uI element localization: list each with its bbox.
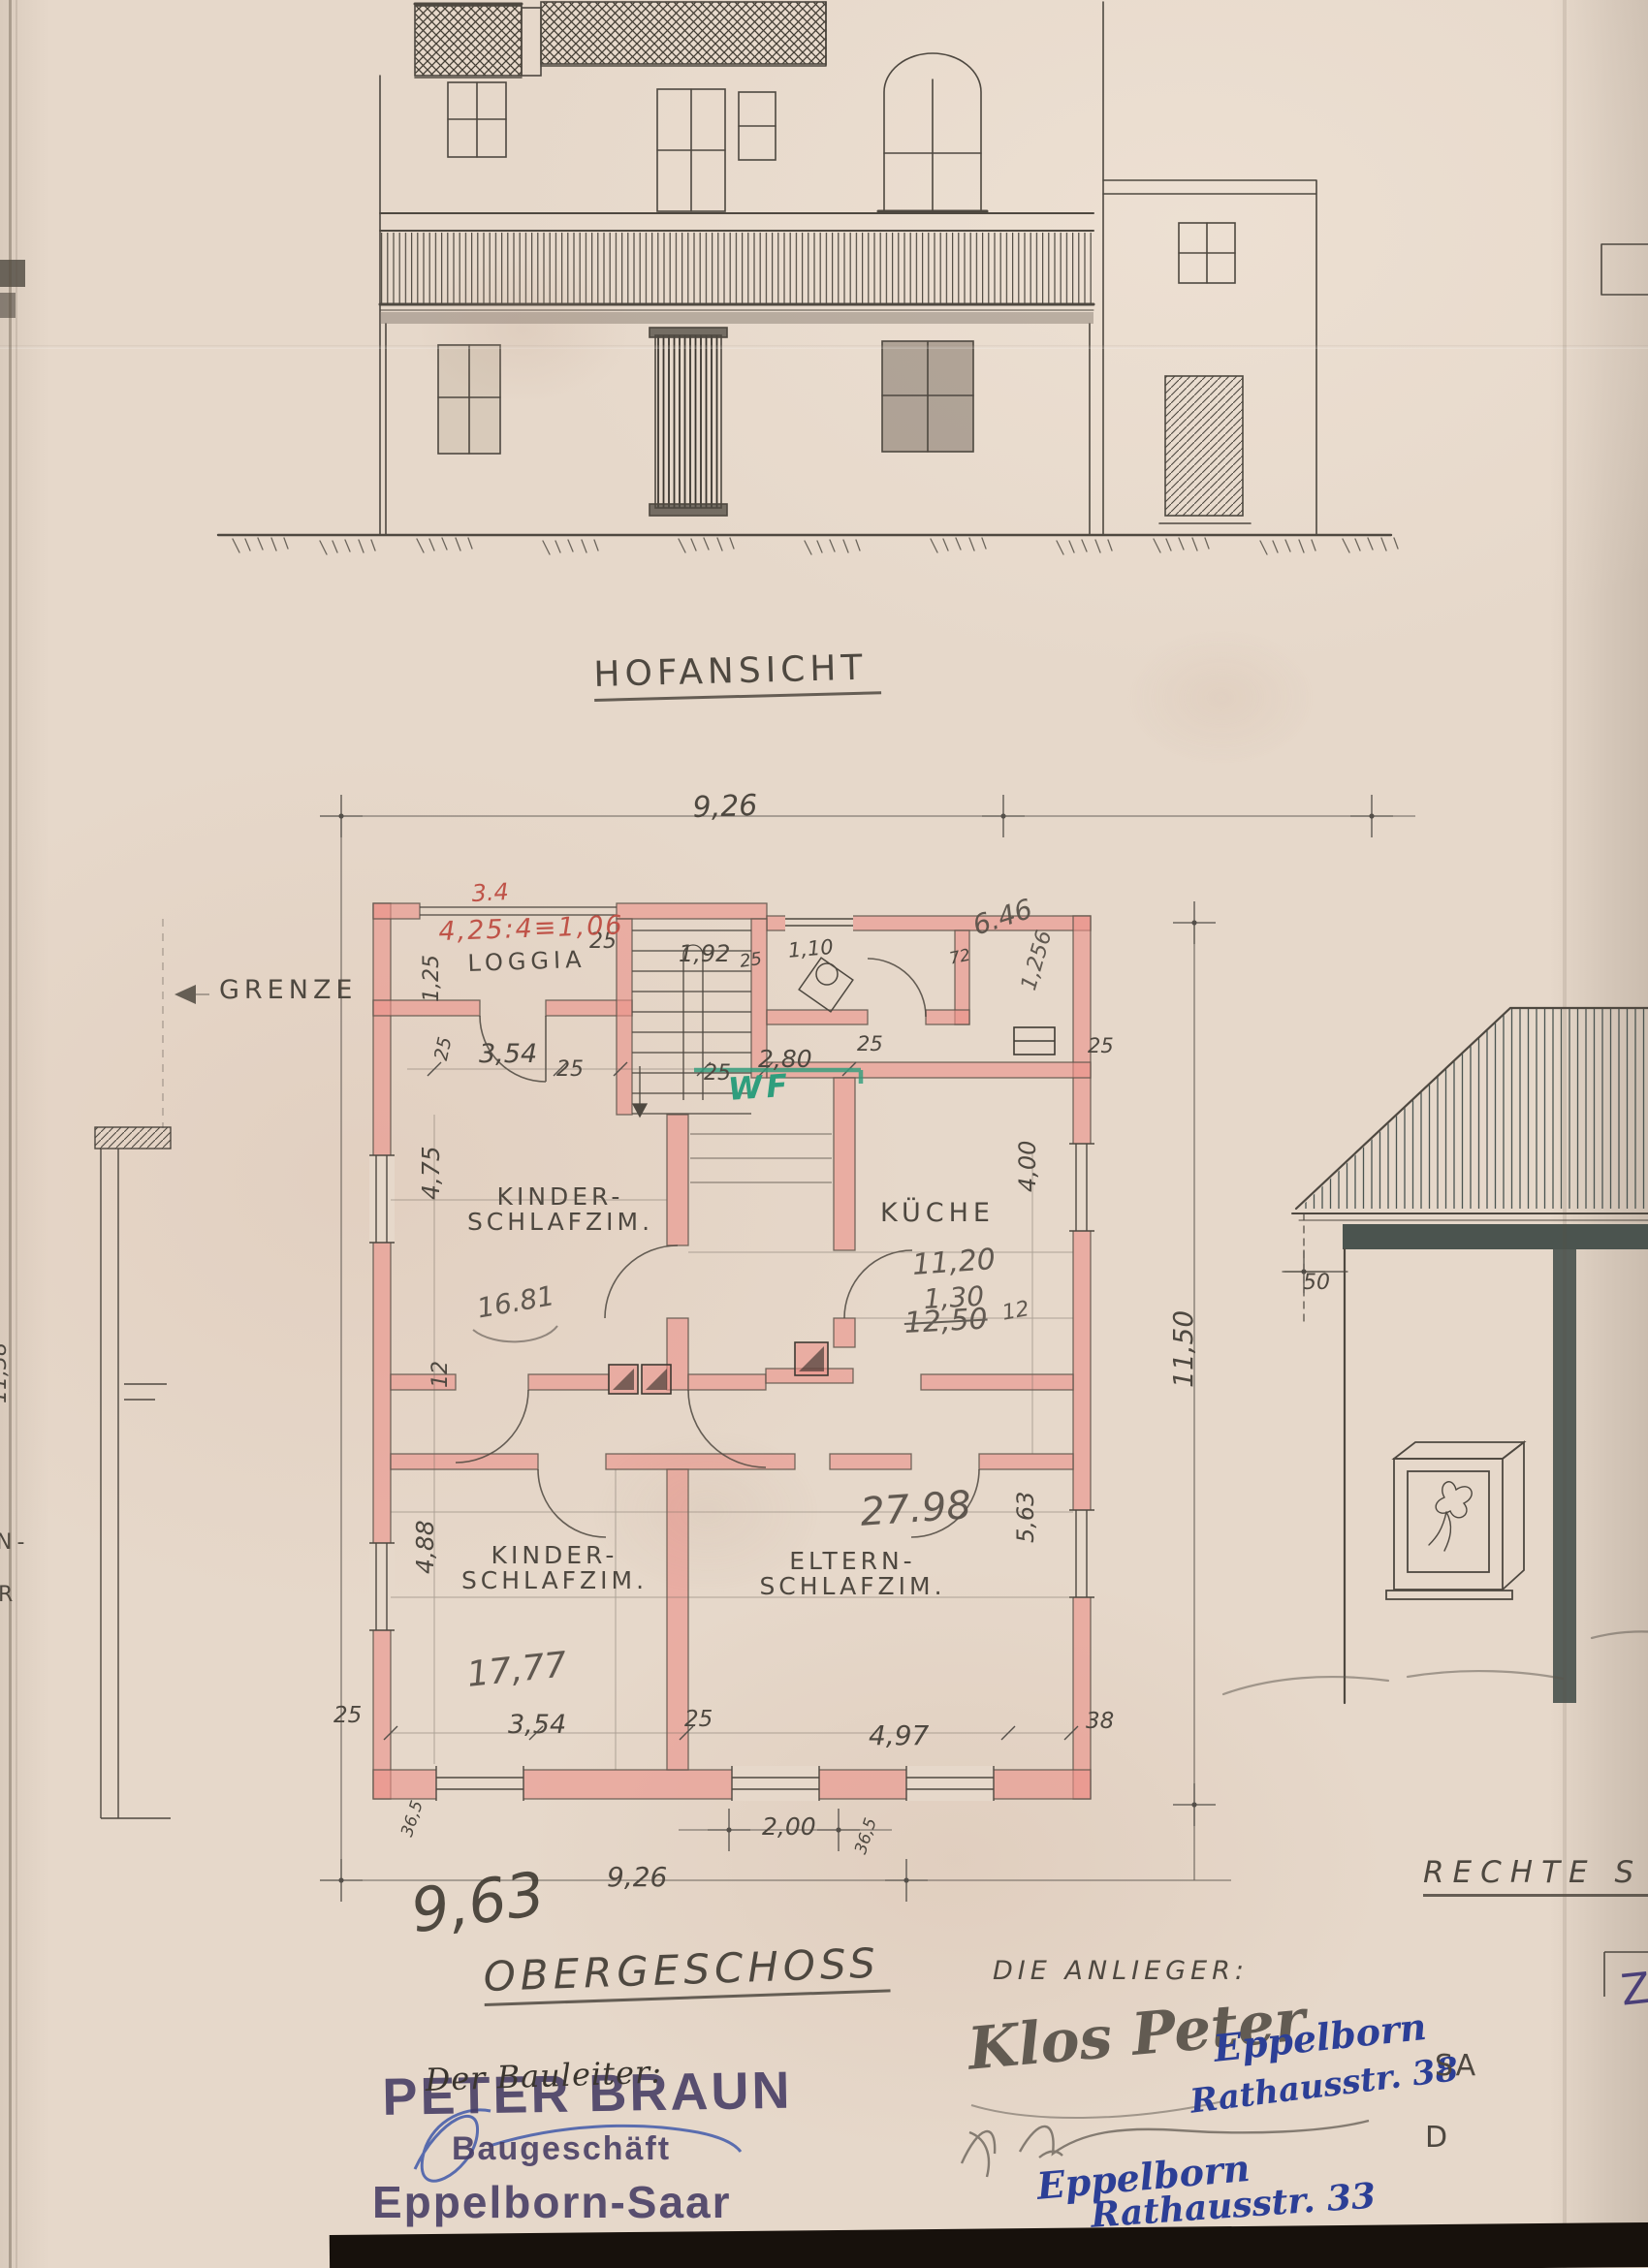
dim-563: 5,63 bbox=[1014, 1492, 1038, 1543]
dim-25-e: 25 bbox=[556, 1058, 584, 1081]
fragment-right-d: D bbox=[1425, 2123, 1447, 2154]
pencil-12: 12 bbox=[1000, 1298, 1031, 1325]
pencil-1250-crossed: 12,50 bbox=[903, 1305, 988, 1339]
grenze-label: GRENZE bbox=[219, 977, 358, 1004]
dim-400: 4,00 bbox=[1016, 1141, 1040, 1192]
neighbour-wall-fragment bbox=[95, 1127, 171, 1818]
side-view-drawing bbox=[1223, 1003, 1648, 1703]
dim-25-b: 25 bbox=[739, 951, 763, 972]
green-note-wf: WF bbox=[727, 1069, 792, 1106]
dim-926-bottom: 9,26 bbox=[607, 1863, 667, 1891]
dim-192: 1,92 bbox=[679, 942, 730, 966]
dim-1150: 11,50 bbox=[1169, 1310, 1197, 1388]
fragment-right-sa: SA bbox=[1435, 2051, 1477, 2082]
dim-926-top: 9,26 bbox=[692, 791, 758, 824]
elevation-title: HOFANSICHT bbox=[593, 649, 881, 702]
paper-fold-right bbox=[1563, 0, 1567, 2268]
dim-354-lower: 3,54 bbox=[508, 1712, 566, 1739]
dim-50-sideview: 50 bbox=[1303, 1272, 1330, 1294]
anlieger-heading: DIE ANLIEGER: bbox=[993, 1958, 1249, 1985]
room-label-kinderschlafzimmer-2: KINDER- SCHLAFZIM. bbox=[458, 1543, 651, 1594]
dim-25-c: 25 bbox=[857, 1033, 883, 1055]
scanned-blueprint-page: HOFANSICHT OBERGESCHOSS RECHTE S DIE ANL… bbox=[0, 0, 1648, 2268]
red-note-34: 3.4 bbox=[471, 880, 509, 906]
side-view-title-partial: RECHTE S bbox=[1423, 1857, 1648, 1897]
red-note-formula: 4,25:4≡1,06 bbox=[438, 912, 624, 946]
drawing-linework bbox=[0, 0, 1648, 2268]
dim-12-vertical: 12 bbox=[429, 1361, 452, 1388]
wc-sink bbox=[799, 958, 853, 1012]
dim-488: 4,88 bbox=[413, 1520, 438, 1574]
bauleiter-caption: Der Bauleiter: bbox=[425, 2056, 663, 2096]
dim-354-upper: 3,54 bbox=[479, 1041, 537, 1068]
dim-125: 1,25 bbox=[421, 955, 443, 1002]
paper-edge-left bbox=[9, 0, 12, 2268]
stamp-city: Eppelborn-Saar bbox=[372, 2179, 732, 2225]
pencil-963: 9,63 bbox=[407, 1862, 549, 1943]
room-label-kueche: KÜCHE bbox=[880, 1200, 995, 1227]
dim-25-d: 25 bbox=[1088, 1035, 1114, 1056]
dim-497: 4,97 bbox=[869, 1721, 929, 1749]
dim-38: 38 bbox=[1086, 1710, 1114, 1733]
paper-edge-left-2 bbox=[16, 0, 17, 2268]
pencil-2798: 27.98 bbox=[859, 1485, 972, 1533]
dim-475: 4,75 bbox=[419, 1146, 444, 1200]
dim-200: 2,00 bbox=[762, 1814, 816, 1840]
room-label-elternschlafzimmer: ELTERN- SCHLAFZIM. bbox=[748, 1549, 957, 1600]
rear-elevation-drawing bbox=[0, 2, 1648, 554]
dim-25-h: 25 bbox=[684, 1708, 713, 1731]
dim-110: 1,10 bbox=[787, 936, 835, 961]
stamp-line2: Baugeschäft bbox=[452, 2132, 671, 2167]
fragment-titlebox-z: Z bbox=[1619, 1967, 1648, 2014]
pencil-1120: 11,20 bbox=[911, 1244, 997, 1280]
dim-25-g: 25 bbox=[333, 1704, 362, 1727]
paper-crease bbox=[0, 345, 1648, 349]
room-label-kinderschlafzimmer-1: KINDER- SCHLAFZIM. bbox=[463, 1184, 657, 1236]
room-label-loggia: LOGGIA bbox=[467, 948, 586, 976]
